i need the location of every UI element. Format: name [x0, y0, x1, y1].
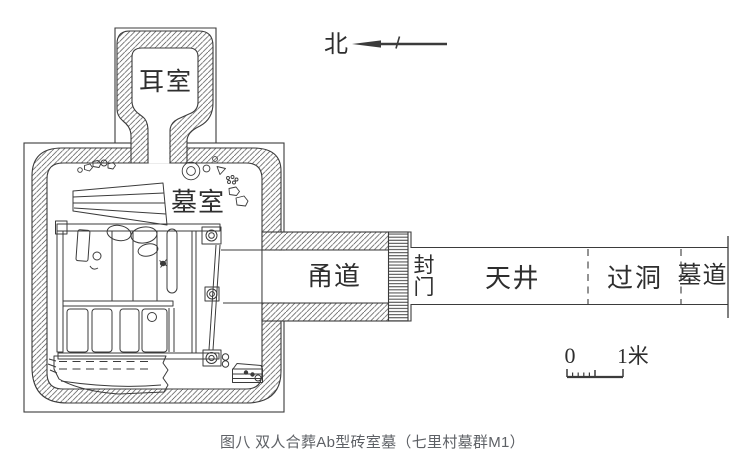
corridor-label: 甬道 — [307, 262, 361, 291]
skeletal-remains — [76, 224, 167, 270]
corridor-north-wall — [262, 232, 389, 250]
plan-labels: 耳室 墓室 甬道 封 门 天井 过洞 墓道 — [139, 68, 728, 299]
sealed-door-bricks — [389, 232, 409, 321]
tomb-ramp-label: 墓道 — [678, 262, 728, 289]
ear-chamber-label: 耳室 — [139, 68, 193, 96]
scale-zero-label: 0 — [565, 343, 576, 368]
grave-goods-southeast — [222, 354, 262, 383]
north-label: 北 — [324, 31, 348, 58]
neck-passage-floor — [149, 124, 170, 163]
north-arrow-head — [352, 40, 381, 47]
tomb-plan-figure: 耳室 墓室 甬道 封 门 天井 过洞 墓道 北 0 1米 图八 双人合葬Ab型砖… — [0, 0, 745, 467]
figure-caption: 图八 双人合葬Ab型砖室墓（七里村墓群M1） — [0, 431, 745, 452]
scale-bar: 0 1米 — [565, 343, 649, 377]
courtyard-label: 天井 — [485, 264, 540, 293]
sealed-door-label-char2: 门 — [414, 275, 435, 299]
lower-coffin — [48, 356, 168, 394]
corridor-mouth-lines — [221, 250, 263, 303]
sealed-door-label-char1: 封 — [414, 253, 435, 277]
scale-meter-label: 1米 — [617, 344, 649, 368]
north-arrow-tick — [396, 37, 400, 49]
corridor-south-wall — [262, 303, 389, 321]
north-arrow: 北 — [324, 31, 447, 58]
burial-chamber-label: 墓室 — [171, 188, 225, 217]
chamber-furnishings — [48, 157, 263, 394]
fallen-planks — [73, 183, 167, 225]
tomb-plan-drawing: 耳室 墓室 甬道 封 门 天井 过洞 墓道 北 0 1米 — [0, 0, 745, 425]
passage-tunnel-label: 过洞 — [607, 264, 663, 293]
